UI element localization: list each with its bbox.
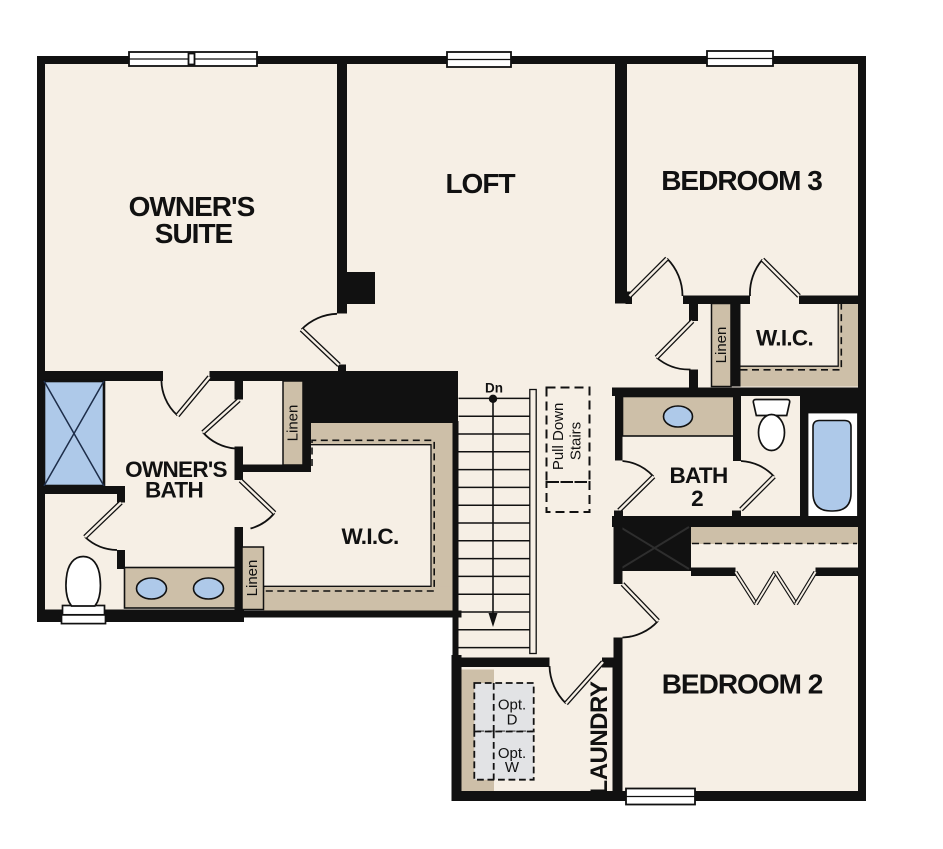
svg-text:SUITE: SUITE	[155, 218, 233, 249]
svg-text:W.I.C.: W.I.C.	[341, 524, 398, 549]
svg-text:D: D	[507, 712, 518, 729]
svg-text:BEDROOM 3: BEDROOM 3	[661, 165, 822, 196]
svg-text:Stairs: Stairs	[568, 422, 585, 460]
svg-text:Linen: Linen	[713, 327, 730, 364]
svg-text:BATH: BATH	[145, 478, 203, 503]
svg-text:Pull Down: Pull Down	[550, 403, 567, 471]
svg-text:W: W	[505, 759, 520, 776]
svg-text:2: 2	[691, 486, 703, 511]
svg-text:Linen: Linen	[244, 560, 261, 597]
svg-text:LOFT: LOFT	[445, 168, 515, 199]
svg-text:LAUNDRY: LAUNDRY	[586, 681, 613, 794]
svg-text:Linen: Linen	[285, 405, 302, 442]
svg-text:W.I.C.: W.I.C.	[756, 326, 813, 351]
svg-text:BATH: BATH	[669, 463, 727, 488]
svg-text:BEDROOM 2: BEDROOM 2	[662, 669, 823, 700]
svg-text:Dn: Dn	[485, 381, 503, 396]
